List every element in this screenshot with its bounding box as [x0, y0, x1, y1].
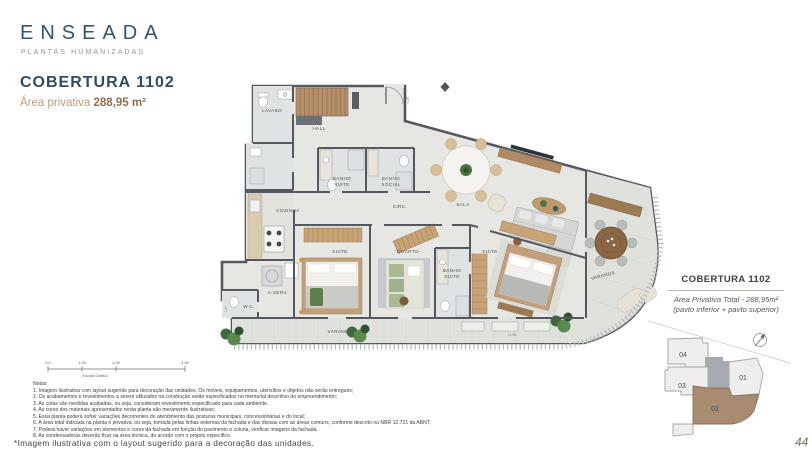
- svg-text:4.00: 4.00: [181, 360, 189, 365]
- room-label-suite-2: SUITE: [482, 249, 498, 255]
- north-arrow-icon: [754, 334, 767, 347]
- room-label-banho-social: BANHO SOCIAL: [381, 176, 400, 188]
- room-label-cozinha: COZINHA: [276, 208, 299, 214]
- svg-text:1.50: 1.50: [224, 306, 228, 313]
- suite1-furniture: [299, 228, 362, 314]
- note-item: 6. A área total indicada na planta é pri…: [33, 420, 463, 426]
- room-label-varanda-1: VARANDA: [328, 329, 353, 335]
- svg-text:11.06: 11.06: [508, 333, 516, 337]
- svg-text:04: 04: [679, 352, 687, 359]
- svg-text:1.00: 1.00: [78, 360, 86, 365]
- footer-disclaimer: *Imagem ilustrativa com o layout sugerid…: [14, 438, 314, 448]
- svg-text:02: 02: [711, 406, 719, 413]
- room-label-banho-suite-1: BANHO SUITE: [333, 176, 351, 188]
- svg-text:03: 03: [678, 383, 686, 390]
- svg-text:2.00: 2.00: [112, 360, 120, 365]
- marker-diamond: [441, 82, 450, 92]
- svg-text:Escala Gráfica: Escala Gráfica: [82, 373, 108, 378]
- keyplan: 04 03 01 02: [648, 321, 790, 436]
- room-label-suite-1: SUITE: [332, 249, 348, 255]
- keyplan-core: [705, 357, 729, 388]
- brochure-page: ENSEADA PLANTAS HUMANIZADAS COBERTURA 11…: [0, 0, 812, 461]
- room-label-lavabo: LAVABO: [262, 108, 282, 114]
- svg-text:0.25: 0.25: [406, 97, 410, 104]
- notes-block: Notas: 1. Imagem ilustrativa com layout …: [33, 381, 463, 440]
- page-number: 44: [795, 435, 808, 449]
- room-label-wc: W.C.: [243, 304, 255, 310]
- room-label-circ: CIRC.: [393, 204, 408, 210]
- plan-floor: [222, 86, 657, 343]
- keyplan-stem: [673, 424, 693, 436]
- svg-text:0.0: 0.0: [45, 360, 51, 365]
- unit-info-title: COBERTURA 1102: [648, 274, 804, 285]
- room-label-aserv: A.SERV.: [268, 290, 288, 296]
- divider: [668, 290, 784, 291]
- svg-text:01: 01: [739, 375, 747, 382]
- room-label-sala: SALA: [456, 202, 469, 208]
- room-label-quarto: QUARTO: [397, 249, 419, 255]
- scale-bar: 0.0 1.00 2.00 4.00 Escala Gráfica: [45, 360, 189, 378]
- unit-info-panel: COBERTURA 1102 Área Privativa Total - 28…: [648, 274, 804, 316]
- unit-info-area: Área Privativa Total - 288,95m²: [648, 295, 804, 305]
- notes-heading: Notas:: [33, 381, 463, 387]
- room-label-banho-suite-2: BANHO SUITE: [443, 268, 461, 280]
- keyplan-unit-04: [668, 338, 708, 367]
- unit-info-pav: (pavto inferior + pavto superior): [648, 305, 804, 315]
- room-label-hall: HALL: [312, 126, 325, 132]
